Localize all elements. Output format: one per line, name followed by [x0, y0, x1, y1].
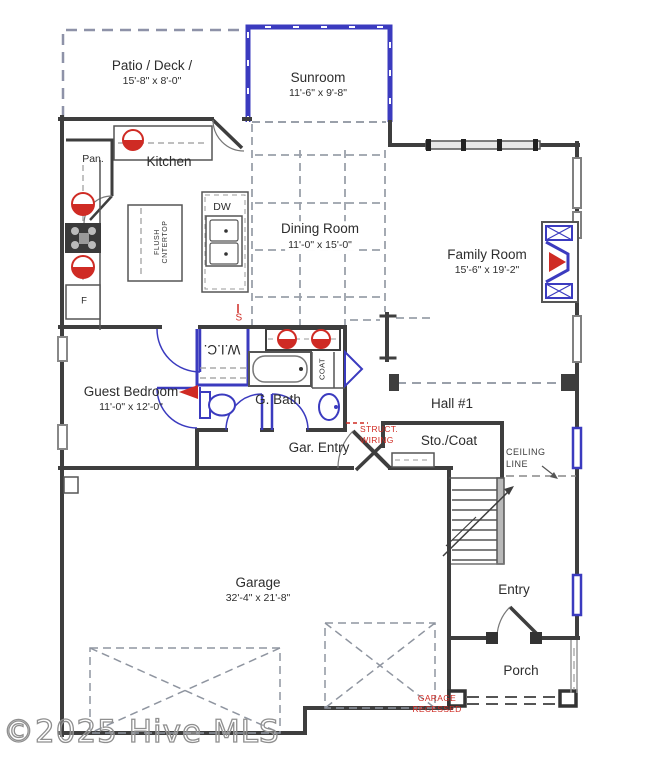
pantry-label: Pan. [82, 153, 104, 165]
sunroom-dims: 11'-6" x 9'-8" [289, 87, 347, 99]
fireplace [542, 222, 578, 302]
struct-wiring-annotation2: WIRING [360, 436, 393, 446]
garage-recessed-annotation2: RECESSED [412, 705, 461, 715]
garage-entry-label: Gar. Entry [289, 440, 350, 456]
hall-label: Hall #1 [431, 396, 473, 412]
garage-dims: 32'-4" x 21'-8" [226, 592, 291, 604]
ceiling-line-annotation2: LINE [506, 459, 528, 469]
porch-label: Porch [503, 663, 538, 679]
guest-bath-label: G. Bath [255, 392, 301, 408]
garage-label: Garage [235, 575, 280, 591]
island-countertop-label: FLUSH CNTERTOP [154, 220, 170, 263]
refrigerator-label: F [81, 297, 87, 308]
cased-opening [389, 374, 577, 391]
patio-label: Patio / Deck / [112, 58, 192, 74]
dishwasher-label: DW [213, 201, 231, 213]
stairs [443, 478, 514, 564]
patio-dims: 15'-8" x 8'-0" [123, 75, 182, 87]
wic-label: W.I.C. [204, 341, 241, 357]
watermark: ©2025 Hive MLS [3, 714, 280, 750]
floor-plan: Patio / Deck / 15'-8" x 8'-0" Sunroom 11… [0, 0, 650, 770]
switch-symbol: S [236, 312, 243, 324]
family-room-dims: 15'-6" x 19'-2" [455, 264, 520, 276]
struct-wiring-annotation: STRUCT. [360, 425, 398, 435]
sunroom-label: Sunroom [291, 70, 346, 86]
kitchen-label: Kitchen [146, 154, 191, 170]
family-room-label: Family Room [447, 247, 527, 263]
guest-bedroom-label: Guest Bedroom [84, 384, 179, 400]
guest-bedroom-dims: 11'-0" x 12'-0" [99, 401, 163, 413]
entry-label: Entry [498, 582, 530, 598]
coat-closet-label: COAT [319, 358, 328, 380]
dining-room-dims: 11'-0" x 15'-0" [285, 239, 355, 251]
ceiling-line-annotation: CEILING [506, 447, 546, 457]
dining-room-label: Dining Room [278, 221, 362, 237]
storage-coat-label: Sto./Coat [418, 433, 480, 449]
garage-recessed-annotation: GARAGE [418, 694, 456, 704]
garage-wall-box [64, 477, 78, 493]
